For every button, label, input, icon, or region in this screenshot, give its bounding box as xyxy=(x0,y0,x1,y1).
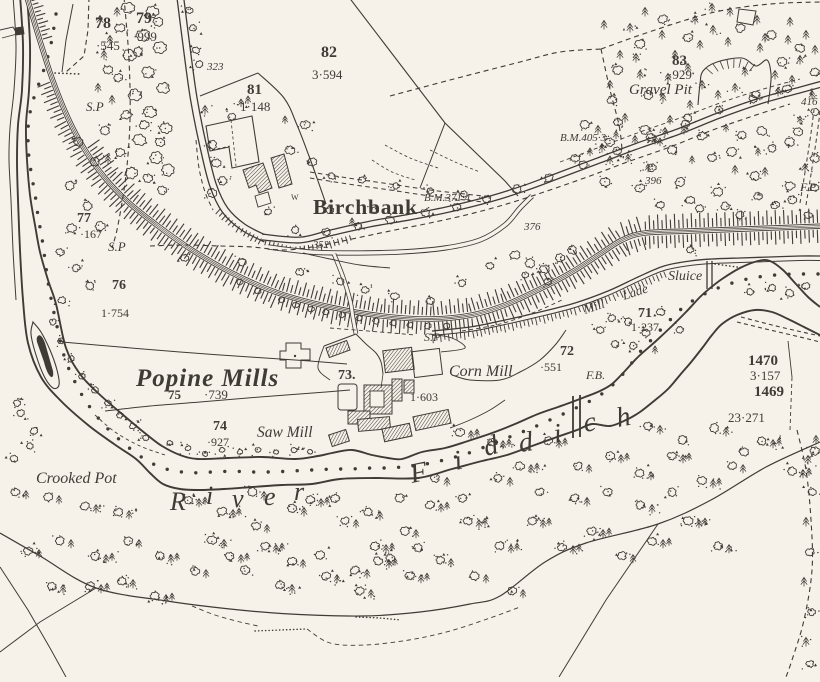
svg-text:S.P: S.P xyxy=(86,99,104,114)
svg-text:W: W xyxy=(291,193,299,202)
svg-text:81: 81 xyxy=(247,82,262,98)
svg-text:·551: ·551 xyxy=(540,360,562,374)
svg-text:v: v xyxy=(232,484,244,513)
svg-text:Crooked Pot: Crooked Pot xyxy=(36,470,117,487)
svg-text:Saw Mill: Saw Mill xyxy=(257,424,313,441)
svg-text:Birchbank: Birchbank xyxy=(313,195,418,219)
svg-text:·739: ·739 xyxy=(204,387,228,402)
svg-text:3·594: 3·594 xyxy=(312,67,343,82)
svg-text:Corn Mill: Corn Mill xyxy=(449,363,513,380)
svg-text:R: R xyxy=(169,487,186,516)
svg-text:Sluice: Sluice xyxy=(668,269,702,284)
svg-text:F.B.: F.B. xyxy=(585,368,605,382)
svg-text:3·157: 3·157 xyxy=(750,368,781,383)
svg-text:F.P.: F.P. xyxy=(799,180,818,194)
svg-text:352: 352 xyxy=(312,240,330,251)
svg-text:1·603: 1·603 xyxy=(410,390,438,404)
svg-text:72: 72 xyxy=(560,344,574,359)
svg-text:i: i xyxy=(206,481,213,510)
svg-text:·927: ·927 xyxy=(207,435,229,449)
svg-text:·167: ·167 xyxy=(80,227,102,241)
svg-text:73.: 73. xyxy=(338,368,356,383)
svg-text:77: 77 xyxy=(77,211,91,226)
svg-text:74: 74 xyxy=(213,419,227,434)
svg-text:e: e xyxy=(264,482,276,511)
svg-text:82: 82 xyxy=(321,44,337,61)
svg-text:75: 75 xyxy=(168,387,182,402)
svg-text:376: 376 xyxy=(523,221,541,233)
svg-text:S.P: S.P xyxy=(424,330,441,344)
svg-text:71: 71 xyxy=(638,306,652,321)
svg-text:416: 416 xyxy=(801,96,818,108)
svg-text:·929: ·929 xyxy=(668,67,692,82)
svg-text:B.M.405·3: B.M.405·3 xyxy=(560,132,607,144)
svg-text:1470: 1470 xyxy=(748,353,778,369)
svg-text:B.M.371·4: B.M.371·4 xyxy=(424,192,471,204)
svg-text:1·237: 1·237 xyxy=(631,320,659,334)
svg-text:23·271: 23·271 xyxy=(728,410,765,425)
svg-text:·545: ·545 xyxy=(96,38,120,53)
svg-text:1·148: 1·148 xyxy=(240,99,270,114)
svg-text:323: 323 xyxy=(206,61,224,73)
svg-text:79: 79 xyxy=(136,10,152,27)
svg-text:r: r xyxy=(294,477,305,506)
svg-text:·999: ·999 xyxy=(133,29,157,44)
svg-text:78: 78 xyxy=(95,15,111,32)
svg-text:Gravel Pit: Gravel Pit xyxy=(629,82,693,98)
svg-text:76: 76 xyxy=(112,278,126,293)
svg-text:396: 396 xyxy=(644,175,662,187)
svg-text:S.P: S.P xyxy=(108,239,126,254)
svg-text:1·754: 1·754 xyxy=(101,306,129,320)
svg-text:1469: 1469 xyxy=(754,384,784,400)
